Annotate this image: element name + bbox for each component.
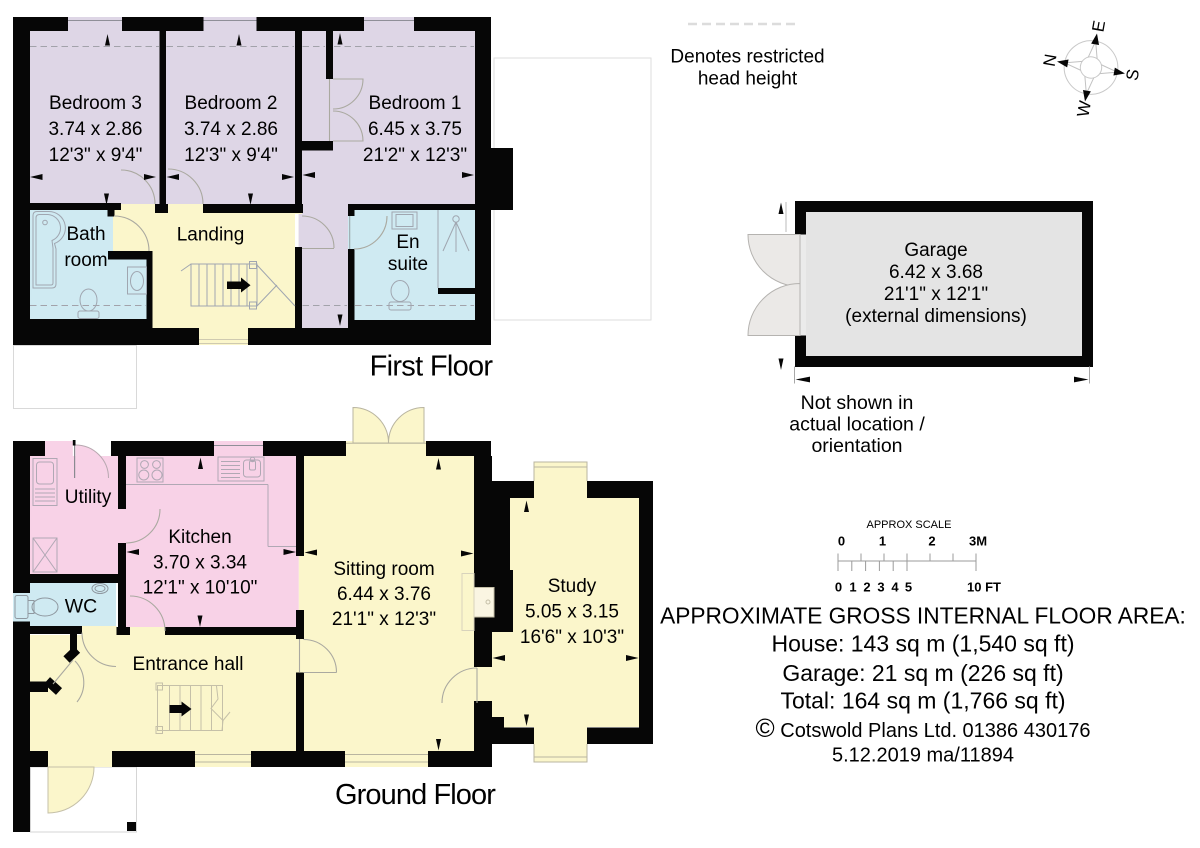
svg-text:Garage: 21 sq m (226 sq ft): Garage: 21 sq m (226 sq ft) [782, 660, 1063, 686]
svg-text:3M: 3M [969, 534, 987, 549]
svg-text:21'1" x 12'3": 21'1" x 12'3" [332, 609, 436, 630]
svg-text:suite: suite [388, 254, 428, 275]
svg-text:Total: 164 sq m (1,766 sq ft): Total: 164 sq m (1,766 sq ft) [780, 688, 1065, 714]
svg-text:Denotes restricted: Denotes restricted [670, 47, 824, 68]
svg-text:Utility: Utility [65, 487, 112, 508]
svg-text:Sitting room: Sitting room [333, 559, 434, 580]
svg-text:6.44 x 3.76: 6.44 x 3.76 [337, 584, 431, 605]
svg-text:Bedroom 1: Bedroom 1 [369, 93, 462, 114]
svg-text:N: N [1040, 53, 1061, 68]
svg-text:1: 1 [879, 534, 886, 549]
svg-text:5: 5 [905, 580, 912, 595]
svg-text:En: En [396, 232, 419, 253]
svg-text:Bedroom 2: Bedroom 2 [185, 93, 278, 114]
svg-text:0: 0 [835, 580, 842, 595]
svg-text:12'3" x 9'4": 12'3" x 9'4" [49, 145, 143, 166]
svg-text:Bath: Bath [66, 224, 105, 245]
svg-text:2: 2 [928, 534, 935, 549]
svg-text:orientation: orientation [811, 435, 902, 457]
svg-text:3.74 x 2.86: 3.74 x 2.86 [48, 119, 142, 140]
svg-text:room: room [64, 250, 107, 271]
svg-text:© Cotswold Plans Ltd. 01386 4: © Cotswold Plans Ltd. 01386 430176 [756, 713, 1091, 743]
svg-text:0: 0 [838, 534, 845, 549]
svg-text:E: E [1088, 19, 1109, 33]
svg-text:3.70 x 3.34: 3.70 x 3.34 [153, 553, 247, 574]
svg-text:Garage: Garage [904, 240, 967, 261]
svg-text:Kitchen: Kitchen [168, 527, 231, 548]
svg-text:W: W [1073, 99, 1094, 118]
svg-text:S: S [1123, 68, 1144, 82]
svg-text:4: 4 [891, 580, 899, 595]
svg-text:3: 3 [877, 580, 884, 595]
svg-text:Entrance hall: Entrance hall [133, 654, 244, 675]
svg-text:APPROXIMATE GROSS INTERNAL FLO: APPROXIMATE GROSS INTERNAL FLOOR AREA: [660, 603, 1186, 629]
svg-text:21'2" x 12'3": 21'2" x 12'3" [363, 145, 467, 166]
svg-text:1: 1 [849, 580, 856, 595]
svg-text:16'6" x 10'3": 16'6" x 10'3" [520, 627, 624, 648]
svg-text:5.12.2019 ma/11894: 5.12.2019 ma/11894 [832, 745, 1014, 767]
svg-text:head height: head height [698, 69, 798, 90]
svg-text:Not shown in: Not shown in [801, 392, 914, 414]
svg-text:Bedroom 3: Bedroom 3 [49, 93, 142, 114]
svg-text:Landing: Landing [177, 225, 245, 246]
svg-text:12'1" x 10'10": 12'1" x 10'10" [143, 578, 258, 599]
svg-text:(external dimensions): (external dimensions) [845, 306, 1027, 327]
svg-text:APPROX SCALE: APPROX SCALE [867, 519, 952, 531]
svg-text:House: 143 sq m (1,540 sq ft): House: 143 sq m (1,540 sq ft) [772, 631, 1075, 657]
svg-text:Ground Floor: Ground Floor [335, 779, 496, 811]
svg-text:WC: WC [65, 596, 98, 618]
svg-text:21'1" x 12'1": 21'1" x 12'1" [884, 284, 988, 305]
svg-text:First Floor: First Floor [370, 351, 494, 383]
svg-text:10 FT: 10 FT [967, 580, 1001, 595]
svg-text:Study: Study [548, 576, 597, 597]
svg-text:12'3" x 9'4": 12'3" x 9'4" [184, 145, 278, 166]
svg-text:actual location /: actual location / [789, 414, 925, 436]
svg-text:6.42 x 3.68: 6.42 x 3.68 [889, 262, 983, 283]
svg-text:5.05 x 3.15: 5.05 x 3.15 [525, 602, 619, 623]
svg-text:2: 2 [863, 580, 870, 595]
svg-text:3.74 x 2.86: 3.74 x 2.86 [184, 119, 278, 140]
svg-text:6.45 x 3.75: 6.45 x 3.75 [368, 119, 462, 140]
